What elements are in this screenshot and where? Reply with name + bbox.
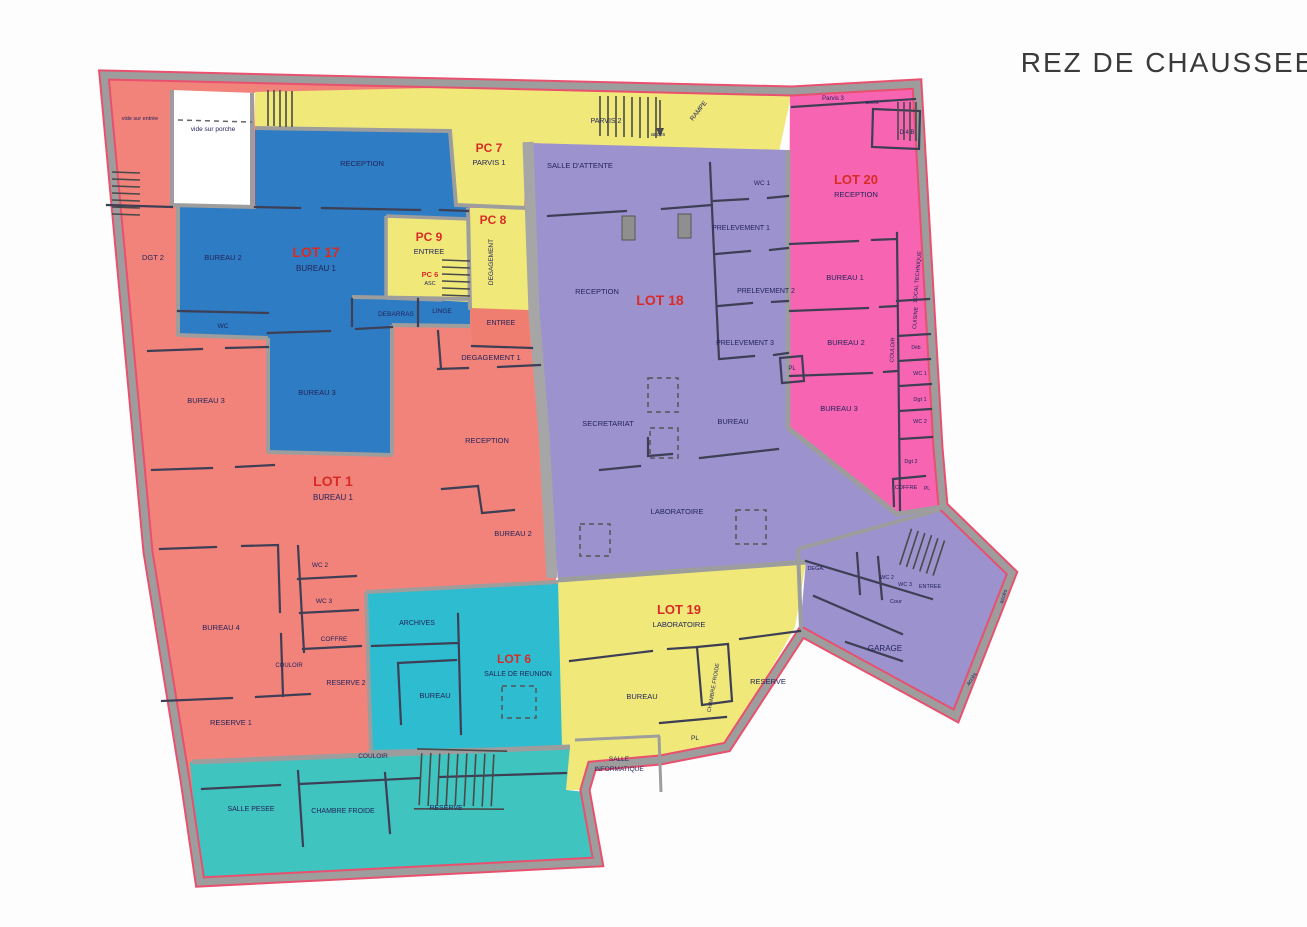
label-lot1-couloir: COULOIR [275,663,303,669]
label-lot17-wc: WC [218,323,229,330]
label-lot1-reception: RECEPTION [465,436,509,445]
label-lot6-bureau: BUREAU [419,691,450,700]
label-garage: GARAGE [868,644,902,653]
label-lot20-wc1: WC 1 [913,371,927,377]
label-prelevement3: PRELEVEMENT 3 [716,340,774,347]
label-lot20-pl: PL [924,486,930,492]
label-vide-sur-entree: vide sur entrée [122,116,158,122]
label-prelevement1: PRELEVEMENT 1 [712,225,770,232]
label-d4b: D 4 B [899,130,914,136]
label-acces-parvis2: accès [651,132,666,138]
zone-entree-salmon [470,308,530,348]
label-dega: DEGA. [807,566,825,572]
label-lot6-chambre-froide: CHAMBRE FROIDE [311,808,375,815]
label-salle-informatique-1: SALLE [609,756,630,763]
label-linge: LINGE [432,308,452,315]
label-lot19-bureau: BUREAU [626,692,657,701]
label-lot20-bureau1: BUREAU 1 [826,273,864,282]
label-vide-sur-porche: vide sur porche [191,126,236,133]
label-lot19-reserve: RESERVE [750,677,786,686]
label-lot6-subtitle: SALLE DE REUNION [484,671,552,678]
floor-plan-page: REZ DE CHAUSSEE LOT 1 BUREAU 1 LOT 17 BU… [0,0,1307,927]
label-laboratoire: LABORATOIRE [651,507,704,516]
label-bureau3: BUREAU 3 [187,396,225,405]
label-dgt2: DGT 2 [142,253,164,262]
pillar [622,216,635,240]
label-lot18-pl: PL [788,366,796,372]
zone-vide-porche [172,90,255,206]
label-bureau4: BUREAU 4 [202,623,240,632]
label-lot18-bureau: BUREAU [717,417,748,426]
label-lot20-dgt2: Dgt 2 [904,459,917,465]
label-lot20-subtitle: RECEPTION [834,190,878,199]
label-lot1-title: LOT 1 [313,473,353,489]
label-lot20-bureau3: BUREAU 3 [820,404,858,413]
label-garage-wc3: WC 3 [898,582,912,588]
label-lot17-subtitle: BUREAU 1 [296,264,337,273]
label-lot18-reception: RECEPTION [575,287,619,296]
label-debarras: DEBARRAS [378,311,414,318]
label-lot1-entree: ENTREE [487,320,516,327]
label-reserve2: RESERVE 2 [326,680,365,687]
label-lot1-coffre: COFFRE [321,636,348,643]
label-garage-entree: ENTREE [919,584,942,590]
label-garage-wc2: WC 2 [880,575,894,581]
label-lot19-pl: PL [691,735,699,742]
label-salle-attente: SALLE D'ATTENTE [547,161,613,170]
label-lot20-coffre: COFFRE [895,485,918,491]
label-lot18-wc1: WC 1 [754,180,771,187]
label-lot17-reception: RECEPTION [340,159,384,168]
label-lot1-subtitle: BUREAU 1 [313,493,354,502]
label-parvis3: Parvis 3 [822,96,844,102]
label-lot19-title: LOT 19 [657,602,701,617]
page-title: REZ DE CHAUSSEE [1021,47,1307,78]
label-reserve1: RESERVE 1 [210,718,252,727]
label-deb: Déb [911,345,920,351]
label-lot1-wc2: WC 2 [312,562,329,569]
label-pc8-title: PC 8 [480,213,507,227]
label-lot6-couloir: COULOIR [358,753,388,760]
label-pc7-title: PC 7 [476,141,503,155]
label-acces-parvis3: accès [865,100,879,106]
label-pc9-title: PC 9 [416,230,443,244]
label-lot17-bureau3: BUREAU 3 [298,388,336,397]
label-pc6-title: PC 6 [422,270,439,279]
label-lot6-title: LOT 6 [497,652,531,666]
label-dgt1: Dgt 1 [913,397,926,403]
label-lot20-bureau2: BUREAU 2 [827,338,865,347]
label-lot19-subtitle: LABORATOIRE [653,620,706,629]
label-lot17-bureau2: BUREAU 2 [204,253,242,262]
label-lot20-wc2: WC 2 [913,419,927,425]
label-lot6-reserve: RESERVE [429,805,463,812]
label-pc6-subtitle: ASC [424,281,435,287]
label-secretariat: SECRETARIAT [582,419,634,428]
label-lot20-title: LOT 20 [834,172,878,187]
label-pc9-subtitle: ENTREE [414,247,444,256]
label-salle-pesee: SALLE PESEE [227,806,274,813]
label-archives: ARCHIVES [399,620,435,627]
label-lot17-title: LOT 17 [292,244,340,260]
label-lot1-wc3: WC 3 [316,598,333,605]
label-parvis2: PARVIS 2 [591,118,622,125]
label-cour: Cour [890,599,902,605]
floor-plan-svg: REZ DE CHAUSSEE LOT 1 BUREAU 1 LOT 17 BU… [0,0,1307,927]
label-pc7-subtitle: PARVIS 1 [472,158,505,167]
pillar [678,214,691,238]
label-degagement1: DEGAGEMENT 1 [461,353,520,362]
zone-lot6-cyan [366,580,562,752]
label-prelevement2: PRELEVEMENT 2 [737,288,795,295]
label-lot1-bureau2: BUREAU 2 [494,529,532,538]
label-lot18-title: LOT 18 [636,292,684,308]
label-pc8-subtitle: DEGAGEMENT [488,239,495,285]
label-salle-informatique-2: INFORMATIQUE [594,766,644,773]
